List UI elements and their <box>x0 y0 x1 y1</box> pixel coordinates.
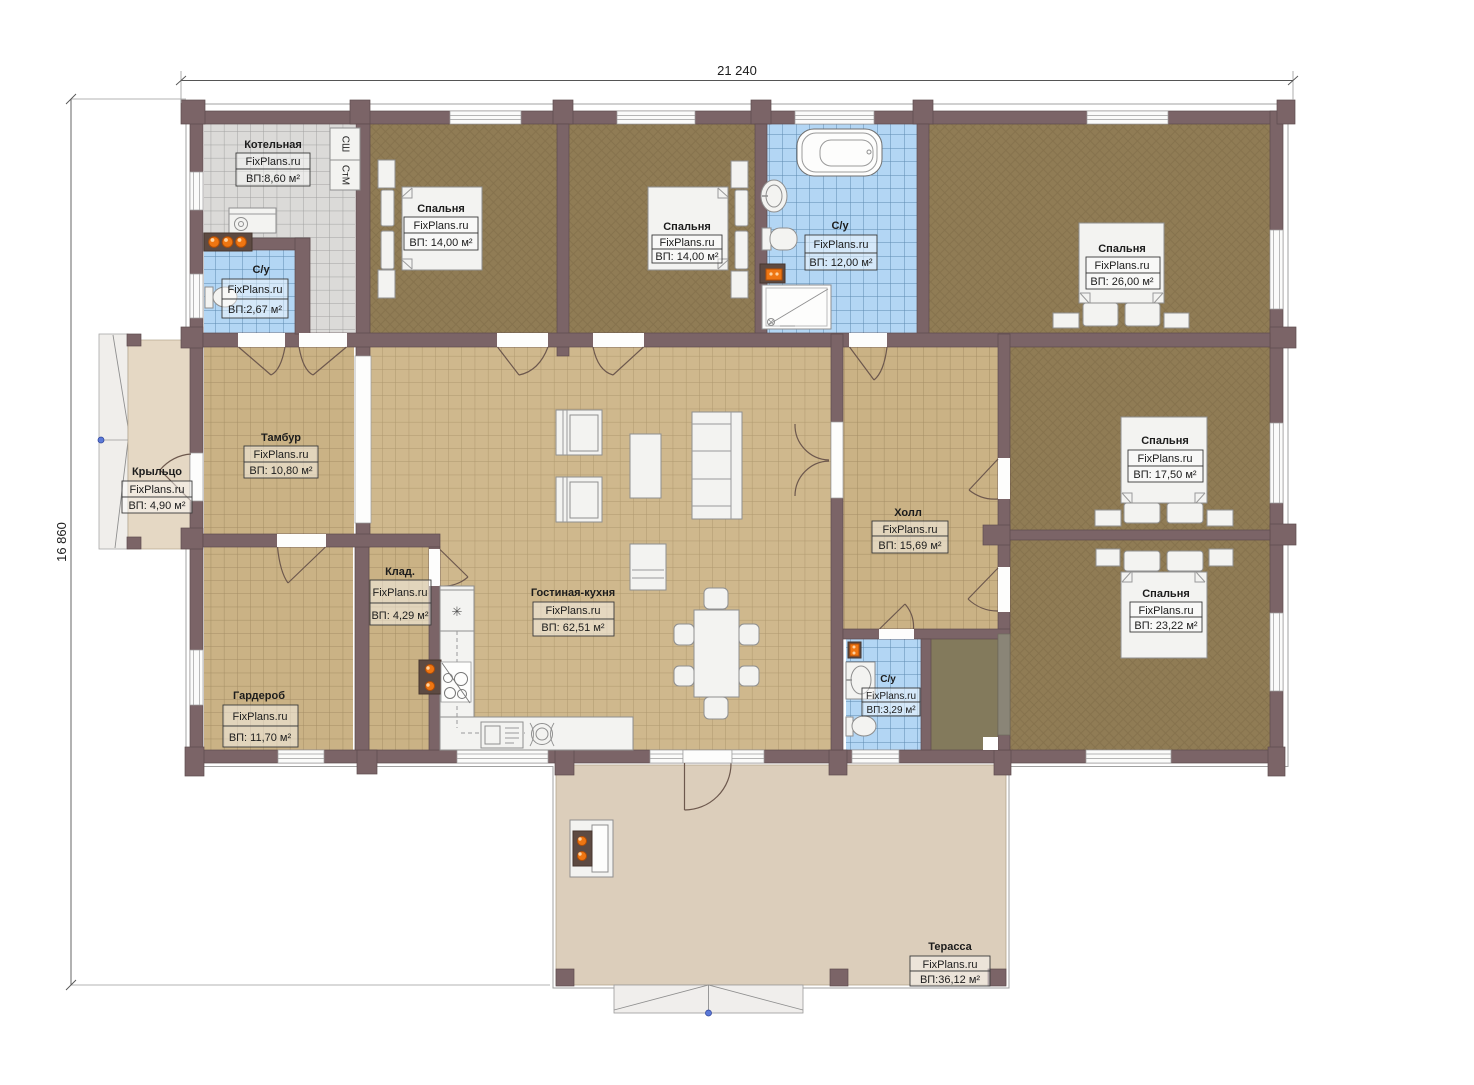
svg-text:Крыльцо: Крыльцо <box>132 466 182 478</box>
svg-text:21 240: 21 240 <box>717 63 757 78</box>
svg-text:ВП:36,12 м²: ВП:36,12 м² <box>920 974 980 986</box>
svg-text:ВП: 23,22 м²: ВП: 23,22 м² <box>1134 620 1198 632</box>
svg-text:Спальня: Спальня <box>417 203 465 215</box>
svg-text:FixPlans.ru: FixPlans.ru <box>1137 453 1192 465</box>
svg-text:ВП: 10,80 м²: ВП: 10,80 м² <box>249 465 313 477</box>
svg-text:СШ: СШ <box>339 136 350 152</box>
svg-text:Холл: Холл <box>894 507 922 519</box>
svg-text:FixPlans.ru: FixPlans.ru <box>659 237 714 249</box>
svg-text:СтМ: СтМ <box>339 165 350 185</box>
svg-text:ВП: 62,51 м²: ВП: 62,51 м² <box>541 622 605 634</box>
svg-text:Гардероб: Гардероб <box>233 690 285 702</box>
svg-text:FixPlans.ru: FixPlans.ru <box>813 239 868 251</box>
svg-text:FixPlans.ru: FixPlans.ru <box>372 587 427 599</box>
svg-text:ВП: 26,00 м²: ВП: 26,00 м² <box>1090 276 1154 288</box>
svg-text:FixPlans.ru: FixPlans.ru <box>545 605 600 617</box>
svg-text:ВП: 14,00 м²: ВП: 14,00 м² <box>409 237 473 249</box>
svg-text:ВП: 17,50 м²: ВП: 17,50 м² <box>1133 469 1197 481</box>
svg-text:FixPlans.ru: FixPlans.ru <box>1138 605 1193 617</box>
svg-text:Спальня: Спальня <box>1142 588 1190 600</box>
svg-text:FixPlans.ru: FixPlans.ru <box>1094 260 1149 272</box>
svg-text:Клад.: Клад. <box>385 566 415 578</box>
svg-text:ВП: 4,90 м²: ВП: 4,90 м² <box>128 500 185 512</box>
svg-text:Спальня: Спальня <box>1098 243 1146 255</box>
svg-text:ВП: 4,29 м²: ВП: 4,29 м² <box>371 610 428 622</box>
svg-text:ВП: 11,70 м²: ВП: 11,70 м² <box>229 732 292 744</box>
svg-text:16 860: 16 860 <box>54 522 69 562</box>
svg-text:FixPlans.ru: FixPlans.ru <box>232 711 287 723</box>
svg-text:С/у: С/у <box>880 674 896 685</box>
svg-text:FixPlans.ru: FixPlans.ru <box>245 156 300 168</box>
svg-text:Котельная: Котельная <box>244 139 302 151</box>
svg-text:Терасса: Терасса <box>928 941 972 953</box>
svg-text:ВП: 15,69 м²: ВП: 15,69 м² <box>878 540 942 552</box>
svg-text:Спальня: Спальня <box>663 221 711 233</box>
svg-text:С/у: С/у <box>831 220 849 232</box>
svg-text:FixPlans.ru: FixPlans.ru <box>413 220 468 232</box>
svg-text:FixPlans.ru: FixPlans.ru <box>866 691 916 702</box>
svg-text:ВП: 14,00 м²: ВП: 14,00 м² <box>655 251 719 263</box>
svg-text:FixPlans.ru: FixPlans.ru <box>129 484 184 496</box>
svg-text:ВП:3,29 м²: ВП:3,29 м² <box>866 705 916 716</box>
svg-text:Тамбур: Тамбур <box>261 432 301 444</box>
svg-text:FixPlans.ru: FixPlans.ru <box>922 959 977 971</box>
svg-text:FixPlans.ru: FixPlans.ru <box>253 449 308 461</box>
svg-text:FixPlans.ru: FixPlans.ru <box>227 284 282 296</box>
svg-text:ВП:2,67 м²: ВП:2,67 м² <box>228 304 282 316</box>
svg-text:✳: ✳ <box>452 604 463 619</box>
svg-text:Спальня: Спальня <box>1141 435 1189 447</box>
svg-text:Гостиная-кухня: Гостиная-кухня <box>531 587 615 599</box>
svg-text:ВП:8,60 м²: ВП:8,60 м² <box>246 173 300 185</box>
svg-text:FixPlans.ru: FixPlans.ru <box>882 524 937 536</box>
svg-text:ВП: 12,00 м²: ВП: 12,00 м² <box>809 257 873 269</box>
svg-text:С/у: С/у <box>252 264 270 276</box>
